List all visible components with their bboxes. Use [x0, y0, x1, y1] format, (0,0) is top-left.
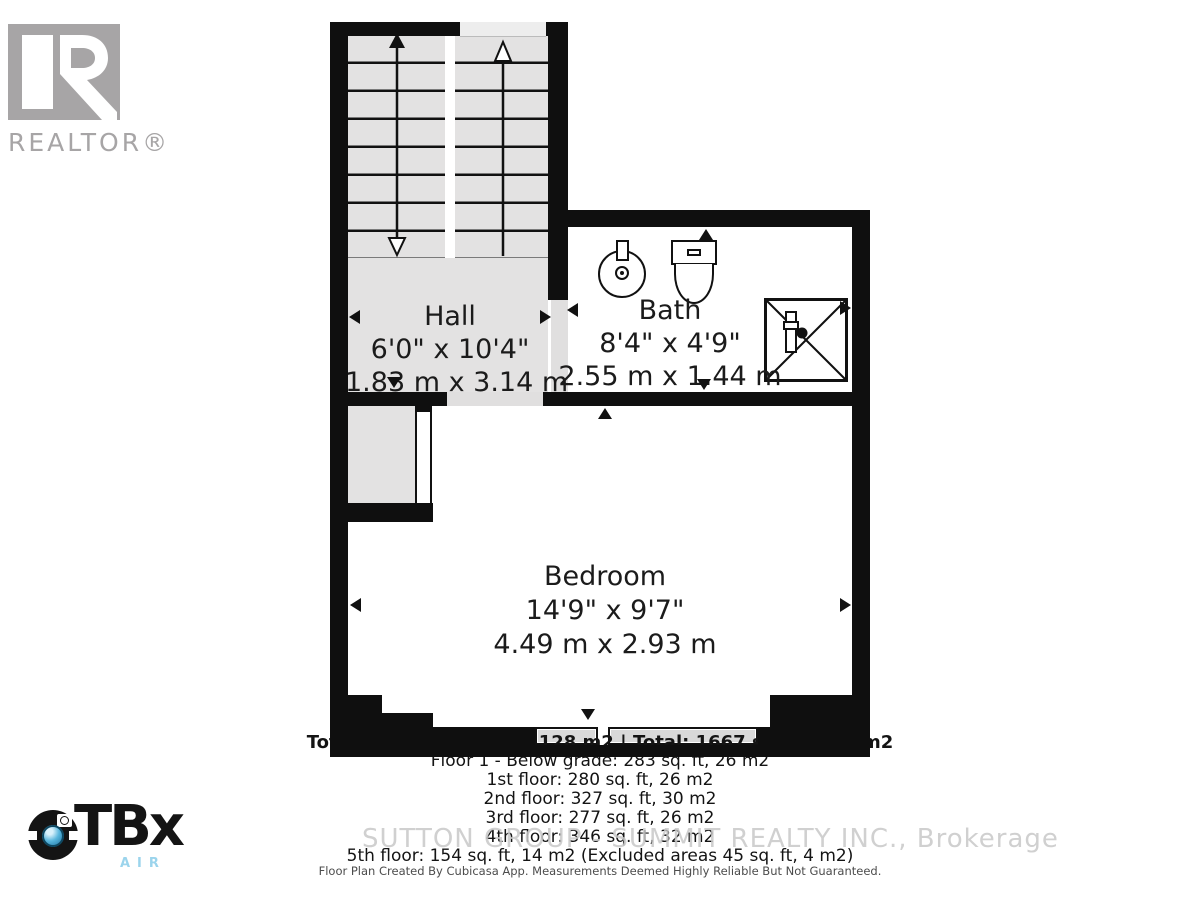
wall-stair-right	[548, 36, 568, 300]
wall-left	[330, 22, 348, 757]
wall-mid-right	[543, 392, 870, 406]
realtor-logo-icon	[8, 24, 126, 122]
room-dim-imperial: 14'9" x 9'7"	[385, 594, 825, 628]
room-dim-metric: 2.55 m x 1.44 m	[545, 360, 795, 393]
room-name: Hall	[345, 300, 555, 333]
closet-floor	[348, 406, 415, 507]
bath-label: Bath 8'4" x 4'9" 2.55 m x 1.44 m	[545, 294, 795, 393]
floor-area-line: 1st floor: 280 sq. ft, 26 m2	[200, 771, 1000, 790]
footer-disclaimer: Floor Plan Created By Cubicasa App. Meas…	[0, 864, 1200, 878]
camera-viewfinder-icon	[57, 814, 72, 827]
room-name: Bedroom	[385, 560, 825, 594]
otbx-brand-text: TBx	[74, 794, 182, 859]
dim-arrow-bath-left-icon	[567, 303, 578, 317]
wall-top-corner	[546, 22, 568, 36]
dim-arrow-hall-left-icon	[349, 310, 360, 324]
wall-right	[852, 227, 870, 757]
room-name: Bath	[545, 294, 795, 327]
dim-arrow-hall-down-icon	[387, 377, 401, 388]
wall-closet-jamb	[415, 398, 432, 412]
dim-arrow-bath-right-icon	[840, 301, 851, 315]
toilet-button-icon	[687, 249, 701, 256]
dim-arrow-bedroom-down-icon	[581, 709, 595, 720]
camera-lens-icon	[42, 825, 64, 847]
brokerage-watermark: SUTTON GROUP - SUMMIT REALTY INC., Broke…	[362, 824, 1059, 854]
wall-bottom-right-block	[770, 695, 870, 757]
room-dim-imperial: 8'4" x 4'9"	[545, 327, 795, 360]
dim-arrow-bedroom-left-icon	[350, 598, 361, 612]
wall-closet-bottom	[330, 503, 433, 522]
dim-arrow-bedroom-up-icon	[598, 408, 612, 419]
floor-area-line: 2nd floor: 327 sq. ft, 30 m2	[200, 790, 1000, 809]
wall-bottom-center	[433, 745, 770, 757]
wall-bath-top	[568, 210, 870, 227]
room-dim-imperial: 6'0" x 10'4"	[345, 333, 555, 366]
dim-arrow-bath-up-icon	[699, 229, 713, 240]
sink-drain-icon	[615, 266, 629, 280]
sink-faucet-icon	[616, 240, 629, 261]
realtor-logo-text: REALTOR®	[8, 128, 170, 157]
floor-plan-page: REALTOR®	[0, 0, 1200, 900]
room-dim-metric: 4.49 m x 2.93 m	[385, 628, 825, 662]
wall-bottom-fill-right	[758, 727, 770, 757]
camera-notch-left	[27, 831, 37, 840]
wall-top	[330, 22, 460, 36]
closet-door-leaf	[415, 410, 432, 503]
dim-arrow-hall-right-icon	[540, 310, 551, 324]
bedroom-label: Bedroom 14'9" x 9'7" 4.49 m x 2.93 m	[385, 560, 825, 662]
hall-label: Hall 6'0" x 10'4" 1.83 m x 3.14 m	[345, 300, 555, 399]
dim-arrow-bath-down-icon	[697, 379, 711, 390]
dim-arrow-bedroom-right-icon	[840, 598, 851, 612]
stairs-direction-arrows-icon	[340, 28, 560, 264]
camera-icon	[28, 810, 78, 860]
wall-bottom-left-step	[348, 713, 433, 757]
